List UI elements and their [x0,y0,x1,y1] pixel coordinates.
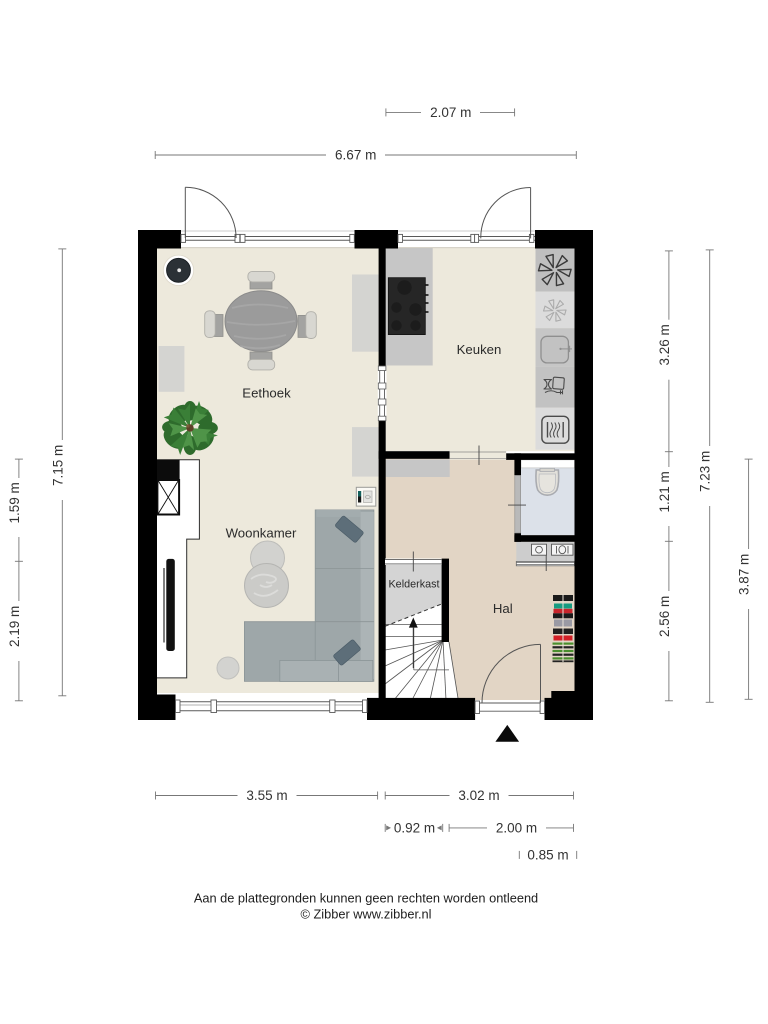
svg-text:7.23 m: 7.23 m [698,451,713,492]
svg-text:0.85 m: 0.85 m [527,847,568,862]
svg-text:2.19 m: 2.19 m [7,606,22,647]
svg-text:Kelderkast: Kelderkast [388,579,439,591]
svg-text:© Zibber www.zibber.nl: © Zibber www.zibber.nl [300,907,431,922]
svg-text:3.87 m: 3.87 m [737,554,752,595]
svg-text:3.26 m: 3.26 m [657,324,672,365]
svg-text:Aan de plattegronden kunnen ge: Aan de plattegronden kunnen geen rechten… [194,891,538,906]
svg-text:3.55 m: 3.55 m [246,788,287,803]
svg-text:Woonkamer: Woonkamer [226,526,297,541]
svg-text:Eethoek: Eethoek [242,386,291,401]
svg-text:2.07 m: 2.07 m [430,105,471,120]
svg-text:6.67 m: 6.67 m [335,148,376,163]
svg-text:3.02 m: 3.02 m [458,788,499,803]
svg-text:2.56 m: 2.56 m [657,596,672,637]
svg-text:2.00 m: 2.00 m [496,820,537,835]
svg-text:Keuken: Keuken [457,342,502,357]
svg-text:1.59 m: 1.59 m [7,482,22,523]
svg-text:Hal: Hal [493,601,513,616]
svg-text:1.21 m: 1.21 m [657,471,672,512]
svg-text:7.15 m: 7.15 m [50,445,65,486]
svg-text:0.92 m: 0.92 m [394,820,435,835]
